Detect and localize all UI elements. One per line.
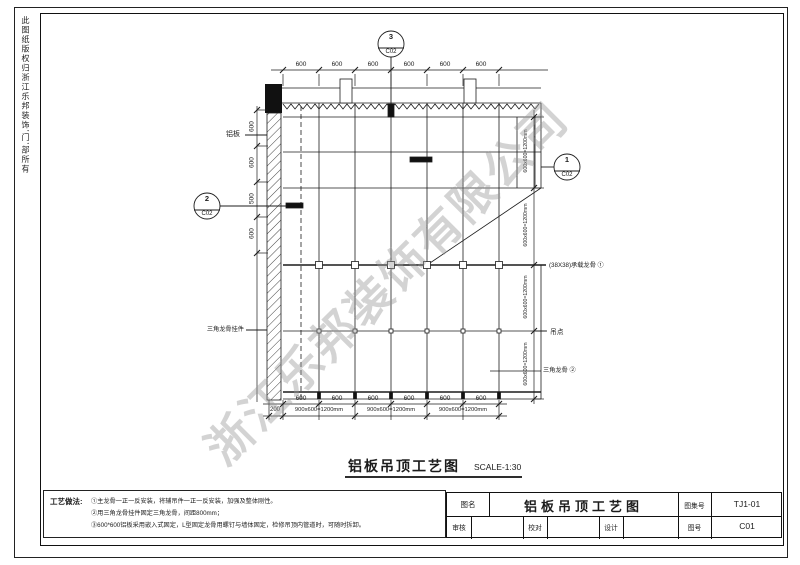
- notes-line-3: ③600*600铝板采用嵌入式固定，L型固定龙骨用螺钉与墙体固定，检修吊顶内管道…: [91, 520, 365, 532]
- dim-top-3: 600: [361, 61, 385, 68]
- drawing-scale: SCALE-1:30: [474, 462, 521, 472]
- dim-right-4: 600x600=1200mm: [523, 331, 529, 397]
- dim-left-2: 600: [249, 145, 256, 181]
- callout-3-sheet: C02: [381, 49, 401, 55]
- dim-bottom1200-1: 900x600=1200mm: [283, 407, 355, 413]
- callout-3-number: 3: [381, 32, 401, 41]
- dim-top-1: 600: [289, 61, 313, 68]
- drawing-sheet: 此图纸版权归浙江乐邦装饰'门'部所有 浙江乐邦装饰有限公司: [0, 0, 800, 565]
- notes-line-1: ①主龙骨一正一反安装，将辅吊件一正一反安装，加强及整体刚性。: [91, 496, 365, 508]
- notes-label: 工艺做法:: [50, 496, 83, 507]
- titleblock-review-label: 审核: [447, 522, 471, 532]
- titleblock-no-value: C01: [711, 521, 783, 531]
- callout-1-number: 1: [557, 155, 577, 164]
- dim-top-2: 600: [325, 61, 349, 68]
- dim-left-4: 600: [249, 216, 256, 252]
- callout-2-number: 2: [197, 194, 217, 203]
- drawing-linework: [0, 0, 800, 565]
- notes-line-2: ②用三角龙骨挂件固定三角龙骨，间距800mm；: [91, 508, 365, 520]
- side-copyright-text: 此图纸版权归浙江乐邦装饰'门'部所有: [20, 16, 31, 436]
- dim-bottom600-6: 600: [469, 395, 493, 402]
- label-triangle-keel: 三角龙骨 ②: [543, 365, 576, 374]
- titleblock-name-label: 图名: [447, 499, 489, 510]
- dim-top-4: 600: [397, 61, 421, 68]
- label-triangle-keel-hanger: 三角龙骨挂件: [198, 324, 244, 333]
- dim-right-2: 600x600=1200mm: [523, 192, 529, 258]
- dim-top-6: 600: [469, 61, 493, 68]
- title-block-row-divider: [447, 516, 781, 517]
- dim-top-5: 600: [433, 61, 457, 68]
- titleblock-check-label: 校对: [523, 522, 547, 532]
- structure-lines: [265, 79, 546, 400]
- titleblock-no-label: 图号: [678, 522, 711, 532]
- dim-bottom600-3: 600: [361, 395, 385, 402]
- notes-block: 工艺做法: ①主龙骨一正一反安装，将辅吊件一正一反安装，加强及整体刚性。 ②用三…: [43, 490, 446, 538]
- titleblock-set-label: 图集号: [678, 500, 711, 510]
- label-aluminum-panel: 铝板: [226, 129, 240, 139]
- label-carrier-keel: (38X38)承载龙骨 ①: [549, 260, 604, 269]
- dimension-ticks: [254, 67, 537, 419]
- drawing-title: 铝板吊顶工艺图: [338, 456, 470, 476]
- dim-left-3: 500: [249, 181, 256, 217]
- label-hanging-point: 吊点: [550, 326, 564, 336]
- dim-bottom1200-3: 900x600=1200mm: [427, 407, 499, 413]
- dim-bottom600-1: 600: [289, 395, 313, 402]
- callout-1-sheet: C02: [557, 172, 577, 178]
- titleblock-name-value: 铝板吊顶工艺图: [489, 496, 678, 515]
- dim-bottom1200-2: 900x600=1200mm: [355, 407, 427, 413]
- dim-right-3: 600x600=1200mm: [523, 264, 529, 330]
- dim-bottom600-5: 600: [433, 395, 457, 402]
- title-block: 图名 铝板吊顶工艺图 图集号 TJ1-01 审核 校对 设计 图号 C01: [446, 492, 782, 538]
- callout-2-sheet: C02: [197, 211, 217, 217]
- titleblock-design-label: 设计: [599, 522, 623, 532]
- titleblock-set-value: TJ1-01: [711, 499, 783, 509]
- dim-right-1: 600x600=1200mm: [523, 118, 529, 184]
- dim-bottom600-2: 600: [325, 395, 349, 402]
- dim-bottom600-4: 600: [397, 395, 421, 402]
- dim-left-1: 600: [249, 109, 256, 145]
